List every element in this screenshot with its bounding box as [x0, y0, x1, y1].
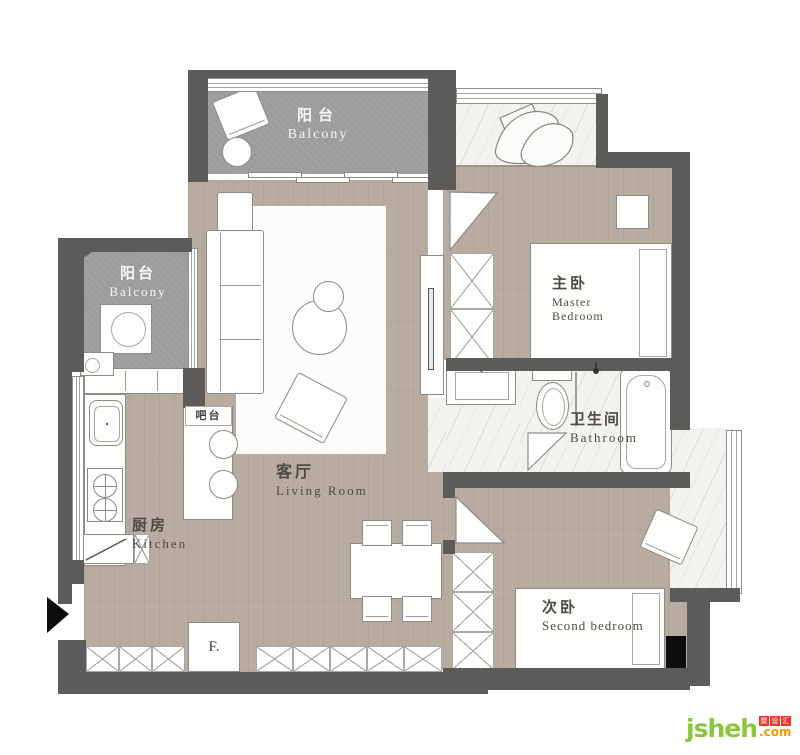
entry-arrow-icon [47, 597, 69, 633]
fridge-door-line [86, 539, 126, 560]
balcony-top-label: 阳台 Balcony [206, 104, 430, 143]
bathroom-door-swing [528, 433, 566, 470]
second-bedroom-door-swing [456, 497, 504, 543]
living-room-label: 客厅 Living Room [276, 458, 368, 499]
watermark-tld: .com [759, 726, 791, 738]
balcony-left-label: 阳台 Balcony [84, 262, 192, 300]
master-bedroom-label: 主卧 Master Bedroom [552, 272, 604, 324]
second-bedroom-label: 次卧 Second bedroom [542, 596, 644, 634]
site-watermark: jsheh 聚 设 汇 .com [686, 716, 791, 738]
bathroom-label: 卫生间 Bathroom [570, 408, 638, 446]
kitchen-label: 厨房 Kitchen [132, 514, 187, 552]
watermark-name: jsheh [686, 719, 757, 739]
bar-counter-label: 吧台 [185, 406, 232, 426]
floor-plan: F. 阳台 Balcony [0, 0, 800, 755]
master-door-swing [450, 192, 497, 250]
shower-head-icon [593, 368, 599, 374]
